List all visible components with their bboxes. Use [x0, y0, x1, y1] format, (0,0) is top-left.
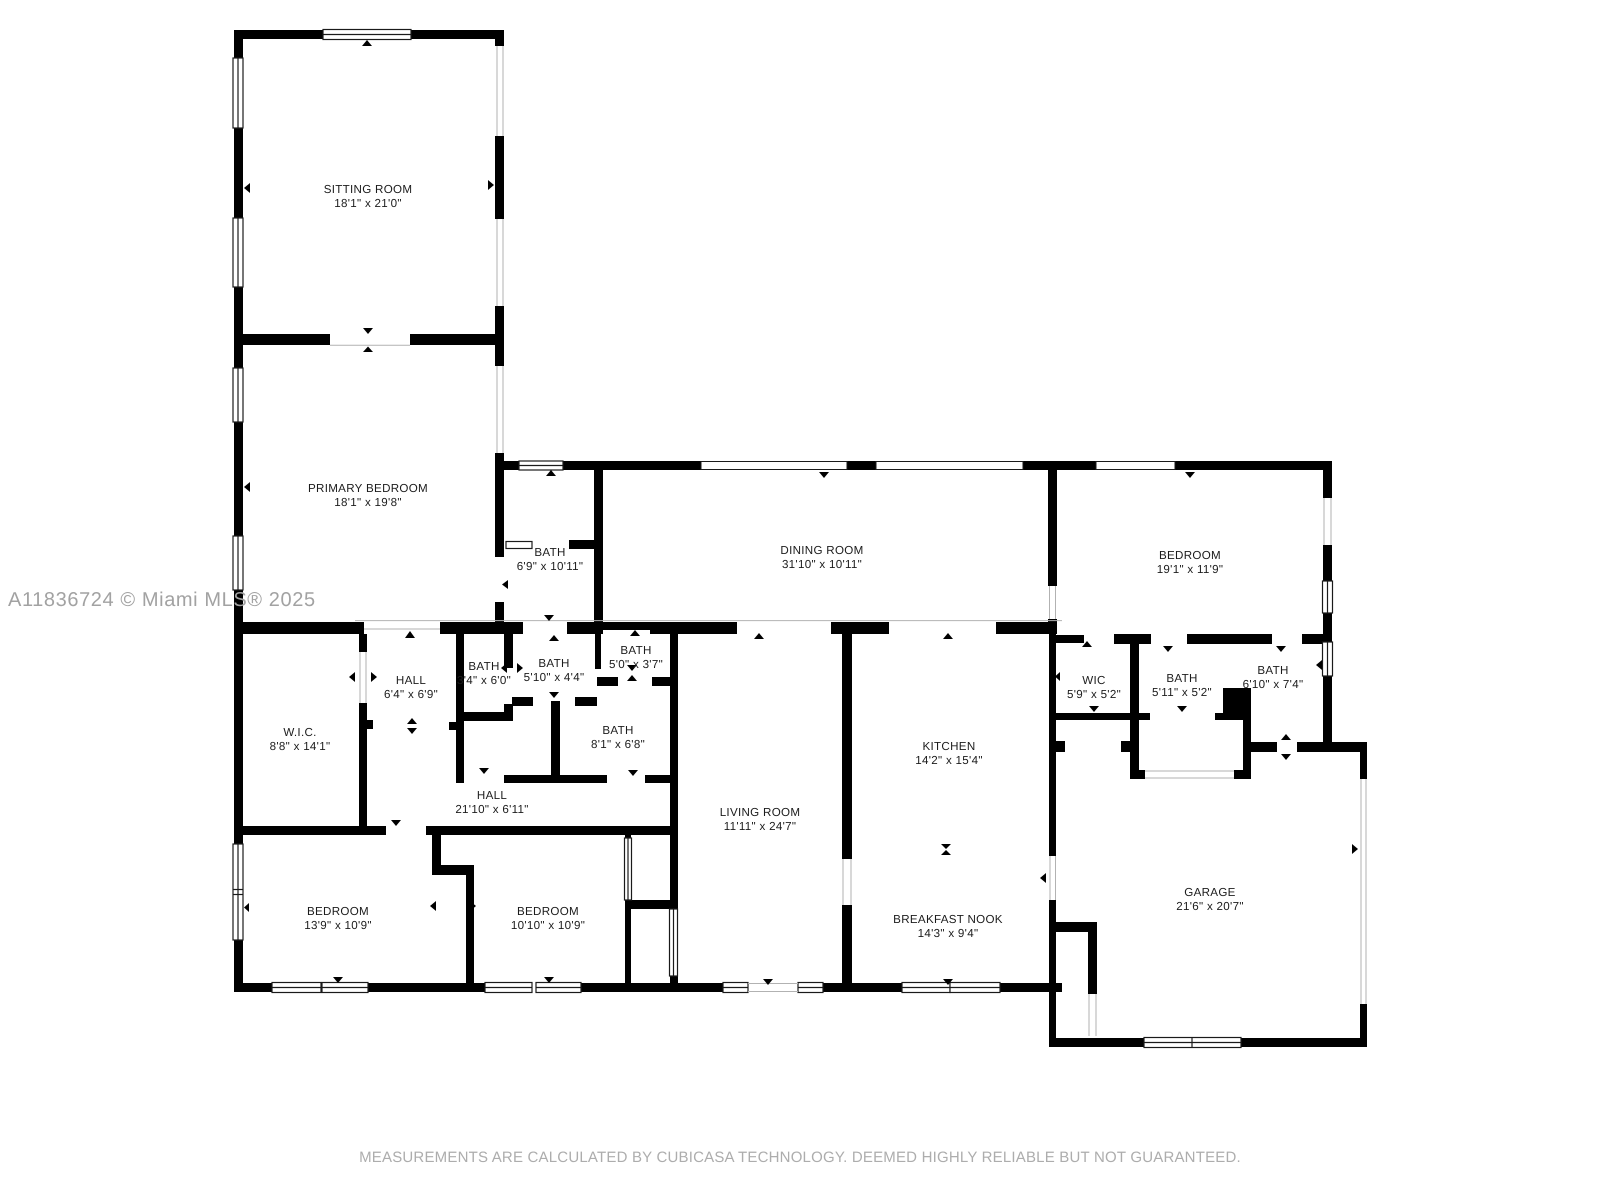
svg-text:6'9" x 10'11": 6'9" x 10'11"	[517, 560, 584, 573]
svg-text:8'1" x 6'8": 8'1" x 6'8"	[591, 738, 645, 751]
svg-text:5'0" x 3'7": 5'0" x 3'7"	[609, 658, 663, 671]
svg-text:5'10" x 4'4": 5'10" x 4'4"	[524, 671, 585, 684]
svg-text:BATH: BATH	[1257, 664, 1288, 677]
svg-text:14'3" x 9'4": 14'3" x 9'4"	[918, 927, 979, 940]
svg-text:HALL: HALL	[477, 789, 507, 802]
svg-text:SITTING ROOM: SITTING ROOM	[324, 183, 413, 196]
svg-text:BEDROOM: BEDROOM	[517, 905, 579, 918]
svg-text:W.I.C.: W.I.C.	[283, 726, 316, 739]
svg-text:KITCHEN: KITCHEN	[923, 740, 976, 753]
svg-text:BREAKFAST NOOK: BREAKFAST NOOK	[893, 913, 1003, 926]
svg-text:31'10" x 10'11": 31'10" x 10'11"	[782, 558, 862, 571]
svg-text:GARAGE: GARAGE	[1184, 886, 1235, 899]
svg-text:10'10" x 10'9": 10'10" x 10'9"	[511, 919, 585, 932]
svg-text:19'1" x 11'9": 19'1" x 11'9"	[1157, 563, 1224, 576]
svg-text:BATH: BATH	[602, 724, 633, 737]
svg-text:6'4" x 6'9": 6'4" x 6'9"	[384, 688, 438, 701]
svg-text:BATH: BATH	[620, 644, 651, 657]
svg-text:6'10" x 7'4": 6'10" x 7'4"	[1243, 678, 1304, 691]
svg-text:MEASUREMENTS ARE CALCULATED BY: MEASUREMENTS ARE CALCULATED BY CUBICASA …	[359, 1149, 1241, 1166]
svg-text:BATH: BATH	[468, 660, 499, 673]
svg-text:PRIMARY BEDROOM: PRIMARY BEDROOM	[308, 482, 428, 495]
svg-text:HALL: HALL	[396, 674, 426, 687]
svg-text:A11836724 © Miami MLS® 2025: A11836724 © Miami MLS® 2025	[8, 589, 316, 611]
svg-text:BATH: BATH	[534, 546, 565, 559]
svg-text:WIC: WIC	[1082, 674, 1105, 687]
svg-text:21'6" x 20'7": 21'6" x 20'7"	[1176, 900, 1243, 913]
svg-text:LIVING ROOM: LIVING ROOM	[720, 806, 801, 819]
svg-text:13'9" x 10'9": 13'9" x 10'9"	[304, 919, 371, 932]
svg-text:BEDROOM: BEDROOM	[307, 905, 369, 918]
svg-text:14'2" x 15'4": 14'2" x 15'4"	[915, 754, 982, 767]
svg-text:BEDROOM: BEDROOM	[1159, 549, 1221, 562]
svg-text:DINING ROOM: DINING ROOM	[780, 544, 863, 557]
svg-text:BATH: BATH	[1166, 672, 1197, 685]
svg-text:5'9" x 5'2": 5'9" x 5'2"	[1067, 688, 1121, 701]
svg-text:18'1" x 21'0": 18'1" x 21'0"	[334, 197, 401, 210]
svg-text:8'8" x 14'1": 8'8" x 14'1"	[270, 740, 331, 753]
svg-text:3'4" x 6'0": 3'4" x 6'0"	[457, 674, 511, 687]
svg-text:21'10" x 6'11": 21'10" x 6'11"	[455, 803, 528, 816]
svg-text:5'11" x 5'2": 5'11" x 5'2"	[1152, 686, 1212, 699]
svg-text:BATH: BATH	[538, 657, 569, 670]
svg-text:11'11" x 24'7": 11'11" x 24'7"	[724, 820, 797, 833]
svg-text:18'1" x 19'8": 18'1" x 19'8"	[334, 496, 401, 509]
